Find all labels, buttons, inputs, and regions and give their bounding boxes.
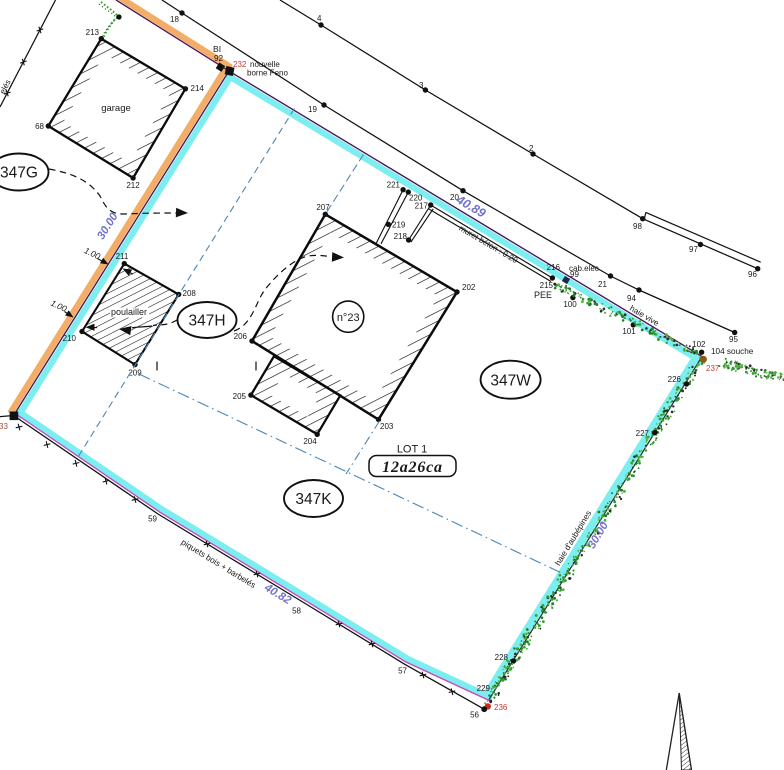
svg-text:203: 203 bbox=[380, 422, 394, 431]
svg-text:227: 227 bbox=[636, 429, 650, 438]
svg-text:347G: 347G bbox=[0, 165, 38, 182]
svg-text:226: 226 bbox=[668, 375, 682, 384]
svg-text:104 souche: 104 souche bbox=[711, 347, 754, 356]
svg-text:18: 18 bbox=[170, 15, 179, 24]
svg-text:96: 96 bbox=[748, 270, 757, 279]
svg-text:95: 95 bbox=[729, 335, 738, 344]
svg-text:94: 94 bbox=[627, 294, 636, 303]
svg-text:229: 229 bbox=[477, 684, 491, 693]
svg-text:347W: 347W bbox=[490, 372, 531, 389]
svg-text:33: 33 bbox=[0, 422, 8, 431]
svg-text:borne Feno: borne Feno bbox=[247, 69, 288, 78]
svg-text:68: 68 bbox=[35, 122, 44, 131]
svg-text:100: 100 bbox=[563, 300, 577, 309]
svg-text:210: 210 bbox=[63, 334, 77, 343]
svg-text:56: 56 bbox=[470, 711, 479, 720]
svg-text:202: 202 bbox=[462, 283, 476, 292]
svg-text:58: 58 bbox=[292, 607, 301, 616]
svg-text:59: 59 bbox=[148, 515, 157, 524]
svg-text:212: 212 bbox=[126, 181, 140, 190]
svg-text:216: 216 bbox=[547, 263, 561, 272]
svg-text:92: 92 bbox=[214, 54, 224, 63]
svg-text:3: 3 bbox=[419, 81, 424, 90]
svg-text:poulailler: poulailler bbox=[111, 307, 147, 317]
svg-text:LOT 1: LOT 1 bbox=[397, 444, 427, 456]
svg-text:101: 101 bbox=[622, 327, 636, 336]
svg-text:garage: garage bbox=[101, 103, 131, 114]
svg-text:232: 232 bbox=[233, 60, 247, 69]
svg-text:n°23: n°23 bbox=[337, 312, 360, 324]
svg-text:98: 98 bbox=[633, 222, 642, 231]
svg-text:237: 237 bbox=[706, 364, 720, 373]
svg-text:218: 218 bbox=[394, 232, 408, 241]
svg-text:206: 206 bbox=[234, 332, 248, 341]
svg-text:21: 21 bbox=[598, 280, 607, 289]
svg-text:236: 236 bbox=[494, 703, 508, 712]
svg-text:214: 214 bbox=[191, 84, 205, 93]
svg-text:205: 205 bbox=[233, 392, 247, 401]
svg-text:215: 215 bbox=[540, 281, 554, 290]
svg-text:217: 217 bbox=[415, 202, 429, 211]
svg-text:PEE: PEE bbox=[534, 290, 552, 300]
svg-text:97: 97 bbox=[689, 245, 698, 254]
svg-text:219: 219 bbox=[392, 221, 406, 230]
svg-text:12a26ca: 12a26ca bbox=[382, 459, 443, 476]
svg-text:208: 208 bbox=[183, 289, 197, 298]
svg-text:99: 99 bbox=[570, 270, 579, 279]
svg-text:221: 221 bbox=[387, 181, 401, 190]
svg-text:102: 102 bbox=[692, 340, 706, 349]
svg-text:228: 228 bbox=[495, 653, 509, 662]
svg-text:4: 4 bbox=[317, 14, 322, 23]
svg-text:347K: 347K bbox=[295, 491, 332, 508]
svg-text:2: 2 bbox=[529, 144, 534, 153]
svg-text:204: 204 bbox=[303, 437, 317, 446]
svg-text:19: 19 bbox=[308, 105, 317, 114]
svg-text:347H: 347H bbox=[188, 313, 225, 330]
svg-text:213: 213 bbox=[86, 28, 100, 37]
svg-text:57: 57 bbox=[398, 667, 407, 676]
svg-text:BI: BI bbox=[213, 44, 221, 54]
svg-text:211: 211 bbox=[116, 252, 129, 261]
